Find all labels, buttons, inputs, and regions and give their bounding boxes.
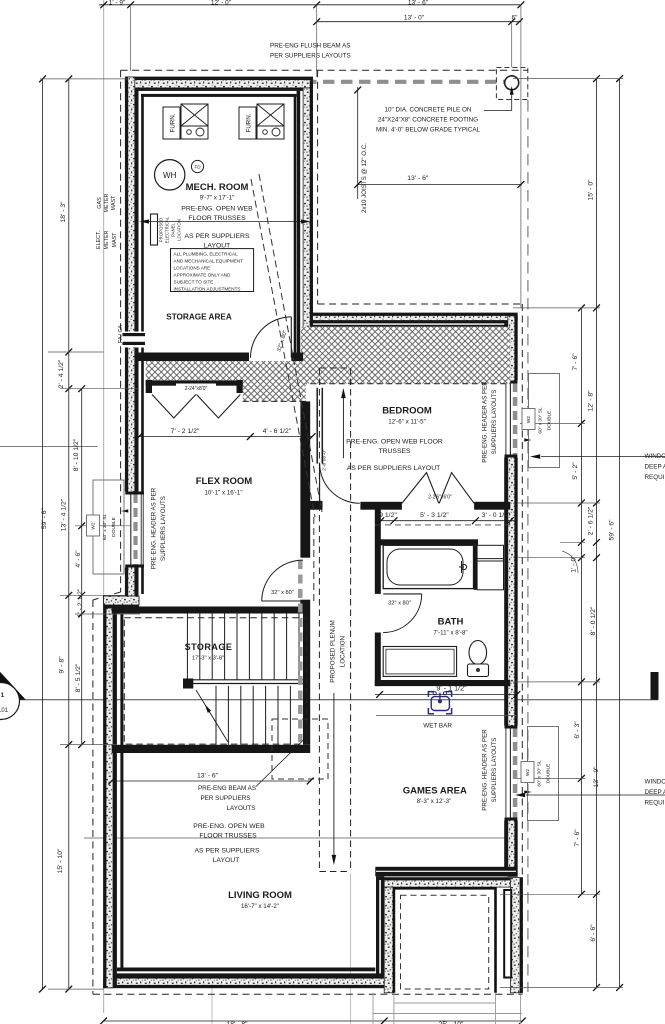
svg-text:LOCATION: LOCATION	[177, 219, 182, 241]
svg-text:10'-1" x 16'-1": 10'-1" x 16'-1"	[204, 490, 242, 497]
svg-text:6": 6"	[512, 15, 519, 22]
svg-text:W2: W2	[91, 522, 97, 530]
svg-text:60" x 30" SL: 60" x 30" SL	[538, 407, 544, 434]
svg-text:7' - 2 1/2": 7' - 2 1/2"	[171, 428, 200, 435]
svg-text:DEEP AN: DEEP AN	[645, 789, 665, 796]
svg-text:LOCATION: LOCATION	[340, 636, 347, 667]
svg-text:LAYOUT: LAYOUT	[213, 857, 240, 864]
svg-text:TRUSSES: TRUSSES	[378, 448, 411, 455]
svg-text:4' - 6 1/2": 4' - 6 1/2"	[263, 428, 292, 435]
svg-text:SUPPLIERS LAYOUTS: SUPPLIERS LAYOUTS	[491, 390, 498, 455]
svg-text:FURN.: FURN.	[170, 113, 177, 132]
svg-text:PRE-ENG FLUSH BEAM AS: PRE-ENG FLUSH BEAM AS	[270, 43, 350, 50]
svg-text:PRE-ENG. OPEN WEB: PRE-ENG. OPEN WEB	[181, 206, 253, 213]
svg-text:GAS: GAS	[97, 197, 103, 209]
svg-text:5' - 2": 5' - 2"	[572, 462, 579, 480]
svg-text:DOUBLE: DOUBLE	[546, 764, 552, 784]
svg-text:SUPPLIERS LAYOUTS: SUPPLIERS LAYOUTS	[160, 496, 167, 561]
svg-text:AND MECHANICAL EQUIPMENT: AND MECHANICAL EQUIPMENT	[174, 258, 244, 263]
svg-text:AS PER SUPPLIERS: AS PER SUPPLIERS	[195, 848, 260, 855]
svg-text:59' - 6": 59' - 6"	[41, 507, 48, 529]
svg-text:2' - 6 1/2": 2' - 6 1/2"	[588, 506, 595, 535]
svg-text:13' - 9": 13' - 9"	[593, 766, 600, 788]
svg-text:8' - 5 1/2": 8' - 5 1/2"	[75, 663, 82, 692]
svg-text:MAST: MAST	[111, 195, 117, 211]
svg-text:2'-8"x8'-0": 2'-8"x8'-0"	[322, 449, 328, 471]
svg-text:7'-11" x 8'-8": 7'-11" x 8'-8"	[433, 630, 467, 637]
svg-text:2' - 4 1/2": 2' - 4 1/2"	[58, 359, 65, 388]
svg-text:12' - 0": 12' - 0"	[211, 0, 232, 7]
svg-text:13' - 6": 13' - 6"	[408, 0, 429, 7]
svg-text:MAST: MAST	[112, 232, 118, 248]
svg-text:17'-3" x 3'-8": 17'-3" x 3'-8"	[192, 656, 224, 662]
svg-text:FD: FD	[194, 165, 201, 170]
svg-text:15' - 0": 15' - 0"	[588, 179, 595, 201]
svg-text:9' - 1 1/2": 9' - 1 1/2"	[436, 684, 467, 693]
svg-text:ELECTRICAL: ELECTRICAL	[165, 216, 170, 243]
svg-text:15' - 10": 15' - 10"	[57, 848, 64, 873]
svg-text:STORAGE AREA: STORAGE AREA	[166, 313, 232, 322]
svg-text:2-24"x8'0": 2-24"x8'0"	[185, 386, 208, 392]
svg-text:6' - 6": 6' - 6"	[590, 924, 597, 942]
svg-text:PANEL: PANEL	[171, 223, 176, 237]
svg-text:PRE-ENG. HEADER AS PER: PRE-ENG. HEADER AS PER	[482, 381, 489, 463]
svg-text:16'-7" x 14'-2": 16'-7" x 14'-2"	[241, 903, 279, 910]
svg-text:FLEX ROOM: FLEX ROOM	[196, 476, 253, 487]
svg-text:1' - 2 1/2": 1' - 2 1/2"	[77, 588, 84, 617]
svg-text:32" x 80": 32" x 80"	[271, 590, 294, 596]
svg-text:WINDOW: WINDOW	[645, 453, 665, 460]
svg-text:LOCATIONS ARE: LOCATIONS ARE	[174, 265, 211, 270]
svg-text:8' - 10 1/2": 8' - 10 1/2"	[73, 438, 80, 471]
svg-text:STORAGE: STORAGE	[185, 642, 233, 652]
svg-text:BATH: BATH	[438, 617, 464, 628]
svg-text:WET BAR: WET BAR	[423, 723, 452, 730]
svg-text:18' - 3": 18' - 3"	[60, 201, 67, 223]
svg-text:FA / CA: FA / CA	[118, 325, 124, 343]
svg-text:AS PER SUPPLIERS: AS PER SUPPLIERS	[185, 233, 250, 240]
svg-text:60" x 30" SL: 60" x 30" SL	[102, 513, 108, 540]
svg-text:3' - 0 1/2": 3' - 0 1/2"	[482, 512, 511, 519]
svg-text:FLOOR TRUSSES: FLOOR TRUSSES	[199, 833, 257, 840]
svg-text:10" DIA. CONCRETE PILE ON: 10" DIA. CONCRETE PILE ON	[385, 107, 472, 114]
svg-text:60" x 30" SL: 60" x 30" SL	[537, 760, 543, 787]
svg-text:W2: W2	[525, 769, 531, 777]
svg-text:PRE-ENG BEAM AS: PRE-ENG BEAM AS	[198, 785, 256, 792]
svg-text:SUPPLIERS LAYOUTS: SUPPLIERS LAYOUTS	[491, 738, 498, 803]
svg-text:13' - 4 1/2": 13' - 4 1/2"	[61, 498, 68, 531]
svg-text:PRE-ENG. OPEN WEB: PRE-ENG. OPEN WEB	[193, 823, 265, 830]
svg-text:4' - 6": 4' - 6"	[75, 550, 82, 568]
svg-text:PER SUPPLIERS LAYOUTS: PER SUPPLIERS LAYOUTS	[270, 53, 351, 60]
svg-text:L01: L01	[0, 708, 9, 714]
svg-text:PRE-ENG. HEADER AS PER: PRE-ENG. HEADER AS PER	[482, 729, 489, 811]
svg-text:9'-7" x 17'-1": 9'-7" x 17'-1"	[200, 195, 235, 202]
svg-text:12' - 8": 12' - 8"	[588, 390, 595, 412]
svg-text:13' - 6": 13' - 6"	[197, 773, 219, 780]
svg-text:MECH. ROOM: MECH. ROOM	[186, 182, 249, 193]
svg-text:5' - 3 1/2": 5' - 3 1/2"	[420, 512, 449, 519]
svg-text:PRE-ENG. HEADER AS PER: PRE-ENG. HEADER AS PER	[151, 487, 158, 569]
svg-text:AS PER SUPPLIERS LAYOUT: AS PER SUPPLIERS LAYOUT	[347, 465, 441, 472]
svg-text:LAYOUTS: LAYOUTS	[227, 805, 256, 812]
svg-text:FURN.: FURN.	[246, 113, 253, 132]
svg-text:LIVING ROOM: LIVING ROOM	[228, 890, 292, 901]
svg-text:7' - 6": 7' - 6"	[572, 353, 579, 371]
svg-text:DOUBLE: DOUBLE	[547, 411, 553, 431]
svg-text:ELECT.: ELECT.	[96, 231, 102, 249]
svg-text:PER SUPPLIERS: PER SUPPLIERS	[200, 795, 250, 802]
svg-text:8' - 0 1/2": 8' - 0 1/2"	[590, 606, 597, 635]
svg-text:8'-3" x 12'-3": 8'-3" x 12'-3"	[417, 798, 452, 805]
svg-text:METER: METER	[104, 193, 110, 212]
svg-text:32" x 80": 32" x 80"	[388, 601, 411, 607]
svg-text:DEEP AN: DEEP AN	[645, 464, 665, 471]
svg-text:DOUBLE: DOUBLE	[111, 517, 117, 537]
svg-text:13' - 0": 13' - 0"	[404, 15, 425, 22]
svg-text:13' - 6": 13' - 6"	[407, 175, 429, 182]
svg-text:INSTALLATION ADJUSTMENTS: INSTALLATION ADJUSTMENTS	[174, 286, 241, 291]
svg-text:1' - 9": 1' - 9"	[109, 0, 126, 7]
svg-text:6' - 3": 6' - 3"	[574, 721, 581, 739]
svg-text:SUBJECT TO SITE: SUBJECT TO SITE	[174, 279, 214, 284]
svg-text:MIN. 4'-0" BELOW GRADE TYPICAL: MIN. 4'-0" BELOW GRADE TYPICAL	[376, 127, 481, 134]
svg-text:APPROXIMATE ONLY AND: APPROXIMATE ONLY AND	[174, 272, 232, 277]
svg-text:9' - 8": 9' - 8"	[59, 656, 66, 674]
svg-text:METER: METER	[104, 230, 110, 249]
svg-text:BEDROOM: BEDROOM	[382, 406, 432, 417]
svg-text:2x10 JOISTS @ 12" O.C.: 2x10 JOISTS @ 12" O.C.	[361, 143, 368, 213]
svg-text:GAMES AREA: GAMES AREA	[403, 786, 467, 797]
svg-text:24"X24"X8" CONCRETE FOOTING: 24"X24"X8" CONCRETE FOOTING	[378, 117, 478, 124]
svg-text:12'-6" x 11'-5": 12'-6" x 11'-5"	[388, 419, 426, 426]
svg-text:REQUIRE: REQUIRE	[645, 474, 665, 481]
svg-text:1: 1	[1, 692, 5, 699]
svg-text:FLOOR TRUSSES: FLOOR TRUSSES	[188, 215, 246, 222]
svg-text:PROPOSED PLENUM: PROPOSED PLENUM	[330, 620, 337, 683]
svg-text:REQUIRE: REQUIRE	[645, 800, 665, 807]
svg-text:2-2'6"x6'0": 2-2'6"x6'0"	[428, 495, 452, 501]
svg-text:W2: W2	[526, 416, 532, 424]
svg-text:ALL PLUMBING, ELECTRICAL: ALL PLUMBING, ELECTRICAL	[174, 251, 239, 256]
svg-text:PRE-ENG. OPEN WEB FLOOR: PRE-ENG. OPEN WEB FLOOR	[346, 439, 443, 446]
svg-text:59' - 6": 59' - 6"	[609, 519, 616, 541]
svg-text:WH: WH	[163, 171, 177, 180]
svg-text:WINDOW: WINDOW	[645, 779, 665, 786]
svg-text:7' - 6": 7' - 6"	[574, 829, 581, 847]
svg-text:9 1/2": 9 1/2"	[379, 512, 397, 519]
